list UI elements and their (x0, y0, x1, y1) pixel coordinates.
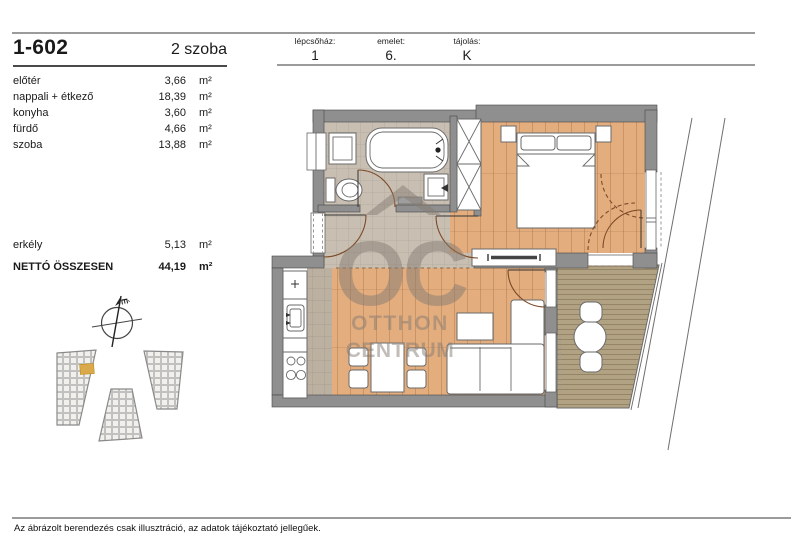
bathroom-window (307, 133, 326, 170)
compass-north-label: É (119, 298, 130, 306)
bedroom-terrace-threshold (588, 255, 633, 266)
pillow (557, 136, 591, 150)
site-building-left (57, 350, 96, 425)
toilet-tank (326, 178, 335, 202)
kitchen-furniture (283, 271, 307, 398)
pillow (521, 136, 555, 150)
wardrobe (457, 119, 481, 210)
balcony-chair (580, 352, 602, 372)
site-plan (57, 350, 183, 441)
dining-chair (349, 370, 368, 388)
balcony-chair (580, 302, 602, 322)
living-window (546, 333, 556, 392)
bedroom-balcony-window (646, 170, 656, 250)
compass-icon: É (92, 296, 142, 347)
dining-chair (407, 370, 426, 388)
disclaimer-text: Az ábrázolt berendezés csak illusztráció… (14, 523, 321, 534)
floor-plan-canvas: OC OTTHON CENTRUM É (0, 0, 800, 545)
nightstand (501, 126, 516, 142)
living-terrace-threshold (546, 270, 556, 307)
bottom-divider (12, 517, 791, 519)
site-building-right (144, 351, 183, 409)
sofa (447, 344, 544, 394)
site-building-middle (99, 389, 142, 441)
watermark-centrum: CENTRUM (346, 339, 455, 362)
watermark-oc: OC (335, 223, 467, 325)
bathtub-faucet (435, 147, 440, 152)
watermark-otthon: OTTHON (351, 312, 449, 335)
site-unit-highlight (80, 364, 95, 375)
nightstand (596, 126, 611, 142)
balcony-table (574, 321, 606, 353)
